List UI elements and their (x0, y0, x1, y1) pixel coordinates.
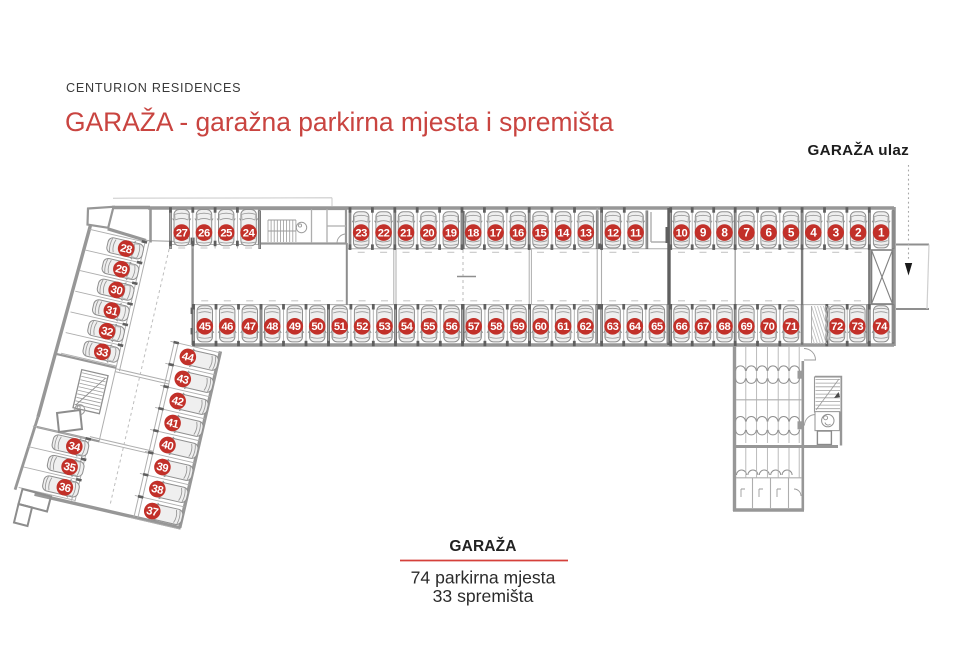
svg-text:71: 71 (785, 321, 797, 333)
svg-text:24: 24 (243, 228, 256, 240)
svg-text:69: 69 (741, 321, 753, 333)
svg-text:8: 8 (721, 226, 728, 240)
svg-text:12: 12 (607, 228, 619, 240)
svg-text:54: 54 (401, 321, 414, 333)
svg-text:4: 4 (810, 226, 817, 240)
svg-text:GARAŽA - garažna parkirna mjes: GARAŽA - garažna parkirna mjesta i sprem… (65, 107, 614, 137)
svg-text:3: 3 (833, 226, 840, 240)
svg-text:17: 17 (490, 228, 502, 240)
svg-text:47: 47 (244, 321, 256, 333)
svg-text:27: 27 (176, 228, 188, 240)
svg-text:19: 19 (445, 228, 457, 240)
svg-text:64: 64 (629, 321, 642, 333)
svg-text:62: 62 (580, 321, 592, 333)
svg-text:5: 5 (788, 226, 795, 240)
svg-text:74 parkirna mjesta: 74 parkirna mjesta (411, 568, 556, 588)
svg-text:73: 73 (852, 321, 864, 333)
svg-text:13: 13 (580, 228, 592, 240)
svg-text:46: 46 (221, 321, 233, 333)
svg-text:58: 58 (490, 321, 502, 333)
svg-text:70: 70 (763, 321, 775, 333)
svg-text:22: 22 (378, 228, 390, 240)
svg-text:68: 68 (719, 321, 731, 333)
svg-text:1: 1 (878, 226, 885, 240)
svg-text:48: 48 (266, 321, 278, 333)
svg-text:10: 10 (676, 228, 688, 240)
svg-text:53: 53 (379, 321, 391, 333)
svg-text:50: 50 (311, 321, 323, 333)
svg-text:51: 51 (334, 321, 346, 333)
svg-text:33 spremišta: 33 spremišta (433, 586, 534, 606)
svg-text:9: 9 (700, 226, 707, 240)
svg-text:26: 26 (198, 228, 210, 240)
svg-text:63: 63 (607, 321, 619, 333)
svg-text:25: 25 (220, 228, 232, 240)
svg-text:61: 61 (557, 321, 569, 333)
svg-text:CENTURION RESIDENCES: CENTURION RESIDENCES (66, 81, 241, 95)
svg-text:18: 18 (467, 228, 479, 240)
svg-text:60: 60 (535, 321, 547, 333)
svg-text:66: 66 (676, 321, 688, 333)
svg-text:57: 57 (468, 321, 480, 333)
svg-text:GARAŽA: GARAŽA (449, 537, 516, 555)
svg-text:2: 2 (855, 226, 862, 240)
svg-text:23: 23 (355, 228, 367, 240)
svg-text:45: 45 (199, 321, 211, 333)
svg-text:11: 11 (630, 228, 641, 240)
svg-text:55: 55 (423, 321, 435, 333)
svg-text:7: 7 (743, 226, 750, 240)
svg-text:52: 52 (356, 321, 368, 333)
svg-text:72: 72 (831, 321, 843, 333)
svg-text:14: 14 (557, 228, 570, 240)
svg-text:67: 67 (697, 321, 709, 333)
svg-text:15: 15 (535, 228, 547, 240)
svg-text:59: 59 (513, 321, 525, 333)
svg-text:56: 56 (446, 321, 458, 333)
svg-text:16: 16 (512, 228, 524, 240)
svg-text:74: 74 (875, 321, 888, 333)
svg-text:6: 6 (766, 226, 773, 240)
svg-text:49: 49 (289, 321, 301, 333)
svg-text:20: 20 (423, 228, 435, 240)
svg-text:65: 65 (651, 321, 663, 333)
svg-text:21: 21 (400, 228, 412, 240)
svg-text:GARAŽA ulaz: GARAŽA ulaz (808, 141, 910, 159)
